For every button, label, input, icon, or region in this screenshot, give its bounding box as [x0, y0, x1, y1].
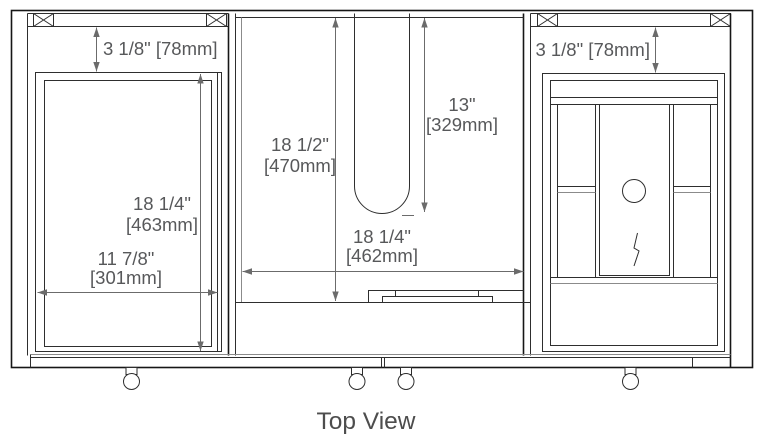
dim-label-left-depth-mm: [463mm]	[126, 214, 198, 235]
top-view-drawing: 3 1/8" [78mm] 3 1/8" [78mm] 18 1/4" [463…	[0, 0, 763, 448]
dimension-left-depth: 18 1/4" [463mm]	[126, 74, 204, 351]
dim-label-middle-width-mm: [462mm]	[346, 245, 418, 266]
dim-label-left-depth-in: 18 1/4"	[133, 193, 191, 214]
right-compartment	[543, 74, 725, 352]
cross-brace-icon	[711, 14, 731, 27]
section-walls	[28, 14, 731, 368]
cross-brace-icon	[34, 14, 54, 27]
dimension-right-gap: 3 1/8" [78mm]	[535, 28, 658, 73]
dimension-middle-width: 18 1/4" [462mm]	[243, 226, 524, 275]
dim-label-middle-width-in: 18 1/4"	[353, 226, 411, 247]
break-line-icon	[634, 233, 639, 266]
cross-brace-icon	[538, 14, 558, 27]
u-shaped-cutout	[355, 14, 410, 214]
center-panel	[600, 105, 670, 276]
drain-hole-icon	[623, 180, 646, 203]
cabinet-outline	[12, 11, 753, 368]
dimension-left-width: 11 7/8" [301mm]	[38, 248, 218, 296]
technical-drawing-page: 3 1/8" [78mm] 3 1/8" [78mm] 18 1/4" [463…	[0, 0, 763, 448]
dim-label-left-width-mm: [301mm]	[90, 267, 162, 288]
dim-label-left-gap: 3 1/8" [78mm]	[103, 38, 218, 59]
kick-strip	[31, 355, 731, 368]
dim-label-middle-depth-in: 18 1/2"	[271, 134, 329, 155]
leg-icon	[623, 368, 639, 390]
bottom-ledge	[369, 291, 524, 303]
cross-brace-icon	[207, 14, 227, 27]
top-rail-left	[28, 14, 229, 27]
left-compartment-lid	[36, 73, 222, 352]
dim-label-slot-depth-mm: [329mm]	[426, 114, 498, 135]
leg-icon	[124, 368, 140, 390]
dimension-left-gap: 3 1/8" [78mm]	[93, 28, 217, 72]
dim-label-slot-depth-in: 13"	[448, 94, 475, 115]
top-rail-right	[531, 14, 731, 27]
dimension-slot-depth: 13" [329mm]	[402, 18, 498, 216]
dim-label-left-width-in: 11 7/8"	[98, 248, 155, 269]
dim-label-right-gap: 3 1/8" [78mm]	[535, 39, 650, 60]
leg-icon	[398, 368, 414, 390]
view-caption: Top View	[317, 408, 416, 435]
leg-icon	[349, 368, 365, 390]
dim-label-middle-depth-mm: [470mm]	[264, 155, 336, 176]
dimension-middle-depth: 18 1/2" [470mm]	[264, 18, 339, 301]
